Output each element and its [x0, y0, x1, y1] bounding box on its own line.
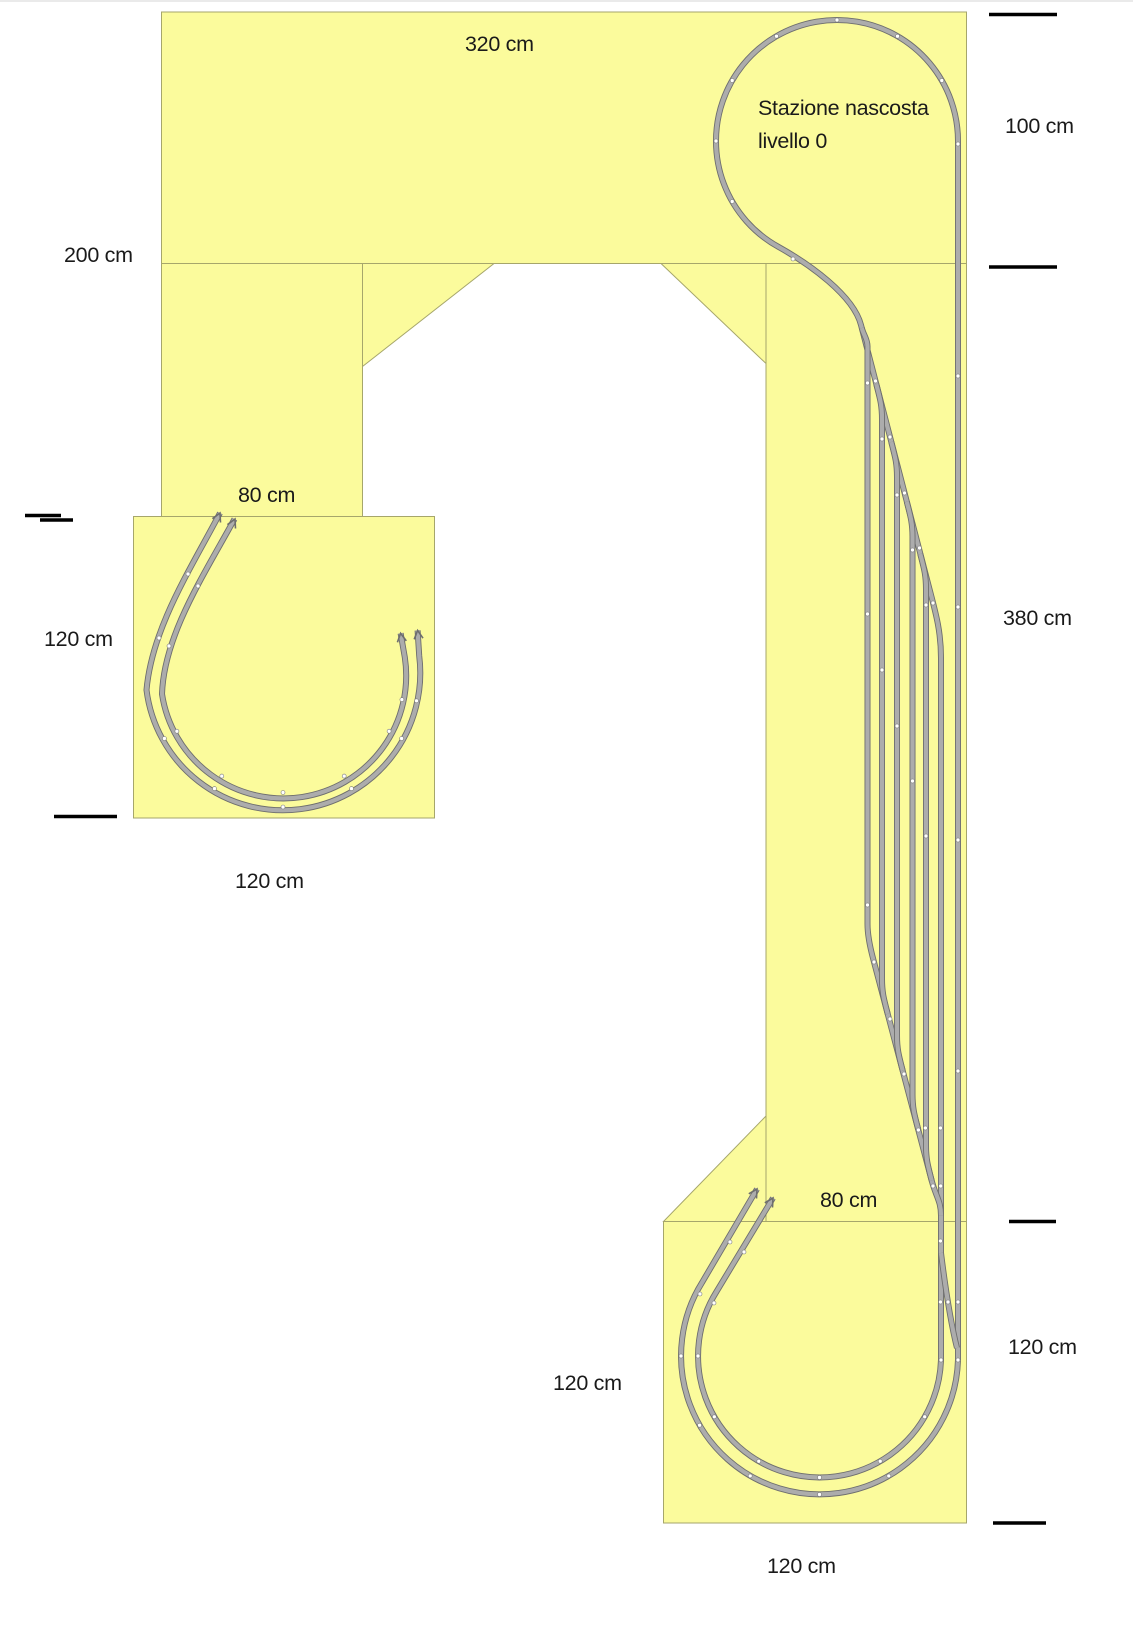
svg-text:320 cm: 320 cm [465, 32, 534, 56]
svg-text:120 cm: 120 cm [553, 1371, 622, 1395]
svg-text:80 cm: 80 cm [238, 483, 295, 507]
svg-text:120 cm: 120 cm [1008, 1335, 1077, 1359]
svg-text:80 cm: 80 cm [820, 1188, 877, 1212]
svg-text:120 cm: 120 cm [767, 1554, 836, 1578]
svg-text:120 cm: 120 cm [235, 869, 304, 893]
svg-text:120 cm: 120 cm [44, 627, 113, 651]
svg-text:livello 0: livello 0 [758, 129, 827, 153]
svg-text:200 cm: 200 cm [64, 243, 133, 267]
svg-text:100 cm: 100 cm [1005, 114, 1074, 138]
svg-text:Stazione nascosta: Stazione nascosta [758, 96, 929, 120]
svg-text:380 cm: 380 cm [1003, 606, 1072, 630]
